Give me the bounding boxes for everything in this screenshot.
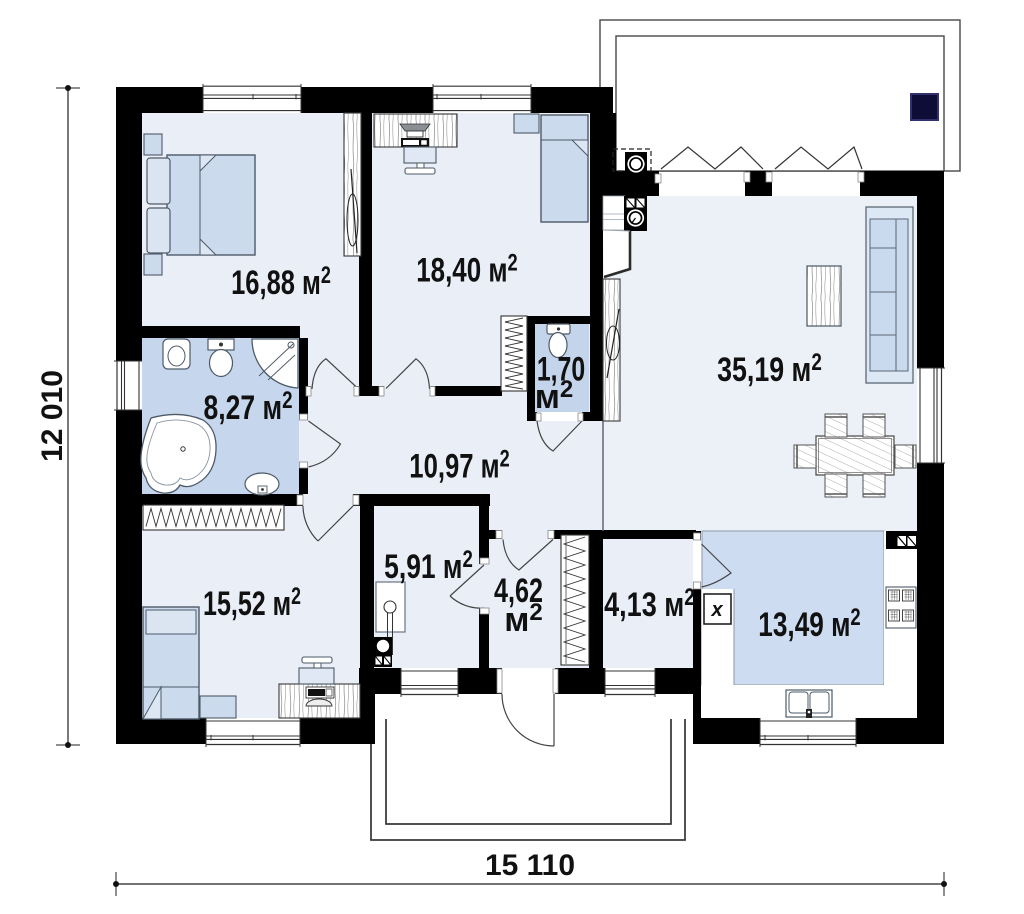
svg-text:13,49 м2: 13,49 м2 [758,604,860,644]
svg-text:12 010: 12 010 [36,370,69,462]
svg-text:x: x [710,599,723,621]
svg-text:10,97 м2: 10,97 м2 [409,445,509,485]
svg-text:35,19 м2: 35,19 м2 [717,348,822,389]
svg-text:8,27 м2: 8,27 м2 [203,387,292,427]
svg-text:15,52 м2: 15,52 м2 [203,583,301,622]
svg-text:4,13 м2: 4,13 м2 [604,583,695,624]
svg-text:16,88 м2: 16,88 м2 [231,263,331,302]
svg-text:5,91 м2: 5,91 м2 [384,546,473,586]
svg-text:18,40 м2: 18,40 м2 [416,249,517,289]
svg-text:15 110: 15 110 [485,849,575,882]
